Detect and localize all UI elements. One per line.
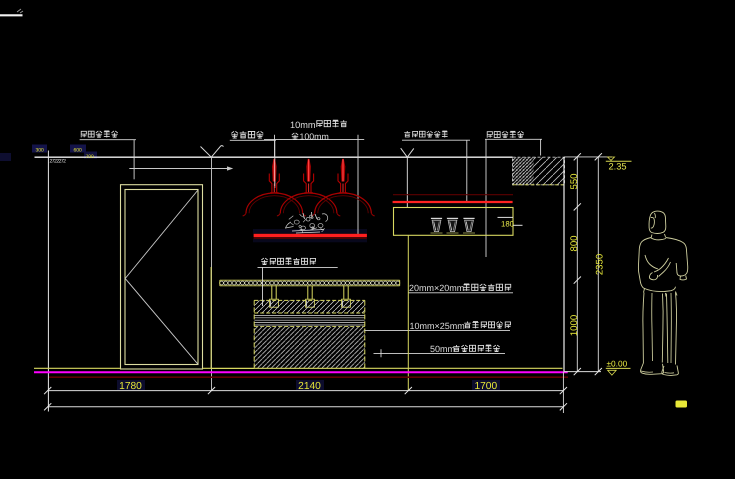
svg-text:10mm: 10mm — [290, 120, 316, 130]
svg-text:550: 550 — [569, 173, 580, 189]
svg-text:2140: 2140 — [298, 381, 321, 392]
svg-text:1780: 1780 — [119, 381, 142, 392]
svg-text:10mm×25mm: 10mm×25mm — [410, 321, 465, 331]
svg-text:700: 700 — [86, 154, 95, 160]
svg-text:180: 180 — [501, 219, 515, 228]
svg-text:1000: 1000 — [569, 315, 580, 336]
svg-text:2722272: 2722272 — [50, 159, 67, 165]
svg-text:50mm: 50mm — [430, 344, 455, 354]
svg-text:800: 800 — [569, 235, 580, 251]
svg-text:2.35: 2.35 — [609, 162, 627, 172]
svg-text:±0.00: ±0.00 — [607, 359, 628, 369]
svg-text:20mm×20mm: 20mm×20mm — [409, 283, 464, 293]
svg-text:2350: 2350 — [595, 254, 606, 275]
svg-text:100mm: 100mm — [300, 132, 329, 142]
svg-text:1700: 1700 — [474, 381, 497, 392]
svg-text:300: 300 — [36, 148, 45, 154]
svg-text:600: 600 — [74, 148, 83, 154]
